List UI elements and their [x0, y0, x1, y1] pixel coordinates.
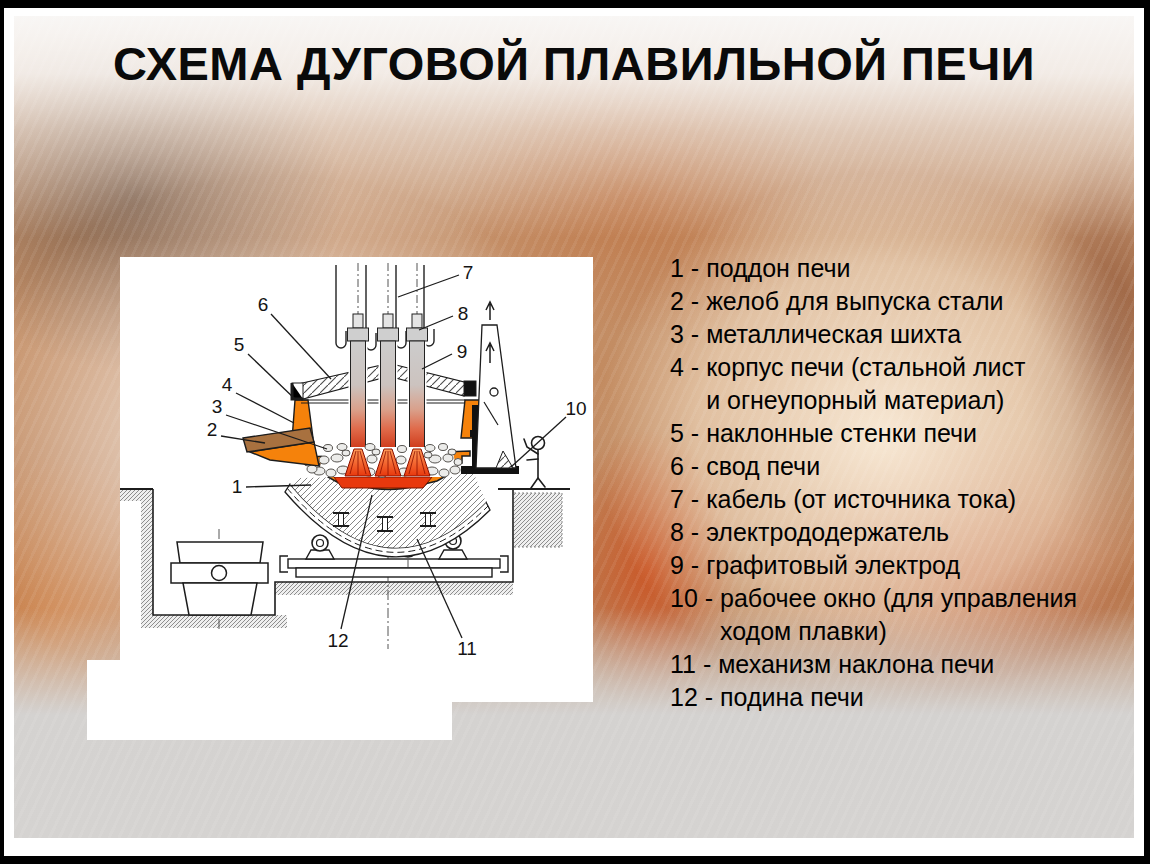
legend-item-number: 10 -: [670, 582, 720, 615]
furnace-diagram-svg: 7 8 9 10 6 5 4 3 2 1 12 11: [120, 257, 593, 702]
legend-item-number: 7 -: [670, 483, 706, 516]
legend-item-text: желоб для выпуска стали: [706, 285, 1003, 318]
legend-item-text: поддон печи: [706, 252, 850, 285]
legend-item-text: рабочее окно (для управленияходом плавки…: [720, 582, 1077, 648]
legend-item-number: 5 -: [670, 417, 706, 450]
legend-item: 3 - металлическая шихта: [670, 318, 1110, 351]
legend-item: 4 - корпус печи (стальной листи огнеупор…: [670, 351, 1110, 417]
legend-item-text: наклонные стенки печи: [706, 417, 977, 450]
legend-item-number: 2 -: [670, 285, 706, 318]
legend-item-number: 8 -: [670, 516, 706, 549]
legend-item: 2 - желоб для выпуска стали: [670, 285, 1110, 318]
exhaust-duct: [476, 302, 516, 468]
arc-flames: [345, 449, 430, 476]
foundry-photo-background: СХЕМА ДУГОВОЙ ПЛАВИЛЬНОЙ ПЕЧИ: [14, 16, 1134, 838]
legend-item: 12 - подина печи: [670, 681, 1110, 714]
legend-item-number: 9 -: [670, 549, 706, 582]
callout-3: 3: [212, 396, 223, 417]
legend-item: 1 - поддон печи: [670, 252, 1110, 285]
callout-6: 6: [258, 294, 269, 315]
legend-item: 11 - механизм наклона печи: [670, 648, 1110, 681]
callout-12: 12: [327, 630, 348, 651]
legend-item-text: кабель (от источника тока): [706, 483, 1016, 516]
legend-item-text: корпус печи (стальной листи огнеупорный …: [706, 351, 1025, 417]
operator-figure: [524, 437, 545, 489]
legend-item-text: электрододержатель: [706, 516, 949, 549]
legend-item-number: 1 -: [670, 252, 706, 285]
ladle: [171, 529, 268, 629]
slide-border: СХЕМА ДУГОВОЙ ПЛАВИЛЬНОЙ ПЕЧИ: [4, 8, 1144, 856]
legend: 1 - поддон печи2 - желоб для выпуска ста…: [670, 252, 1110, 714]
legend-item: 7 - кабель (от источника тока): [670, 483, 1110, 516]
legend-item: 6 - свод печи: [670, 450, 1110, 483]
legend-item: 10 - рабочее окно (для управленияходом п…: [670, 582, 1110, 648]
legend-item: 5 - наклонные стенки печи: [670, 417, 1110, 450]
legend-item-text: графитовый электрод: [706, 549, 960, 582]
legend-item-number: 6 -: [670, 450, 706, 483]
legend-item: 8 - электрододержатель: [670, 516, 1110, 549]
legend-item-number: 3 -: [670, 318, 706, 351]
callout-5: 5: [234, 334, 245, 355]
legend-item-text: подина печи: [720, 681, 864, 714]
up-arrow-icon: [486, 302, 494, 320]
callout-10: 10: [565, 398, 586, 419]
legend-item-number: 4 -: [670, 351, 706, 384]
legend-item-text: механизм наклона печи: [718, 648, 994, 681]
callout-1: 1: [232, 476, 243, 497]
legend-item-text: свод печи: [706, 450, 820, 483]
legend-item-number: 12 -: [670, 681, 720, 714]
legend-item-number: 11 -: [670, 648, 718, 681]
callout-4: 4: [222, 374, 233, 395]
callout-2: 2: [207, 419, 218, 440]
slide-title: СХЕМА ДУГОВОЙ ПЛАВИЛЬНОЙ ПЕЧИ: [14, 36, 1134, 91]
legend-item-text: металлическая шихта: [706, 318, 961, 351]
callout-7: 7: [463, 262, 474, 283]
callout-9: 9: [457, 341, 468, 362]
slide-frame: СХЕМА ДУГОВОЙ ПЛАВИЛЬНОЙ ПЕЧИ: [0, 0, 1150, 864]
melt-pool: [334, 477, 432, 488]
callout-8: 8: [458, 303, 469, 324]
legend-item: 9 - графитовый электрод: [670, 549, 1110, 582]
callout-11: 11: [457, 638, 477, 659]
diagram-panel: 7 8 9 10 6 5 4 3 2 1 12 11: [120, 257, 593, 702]
